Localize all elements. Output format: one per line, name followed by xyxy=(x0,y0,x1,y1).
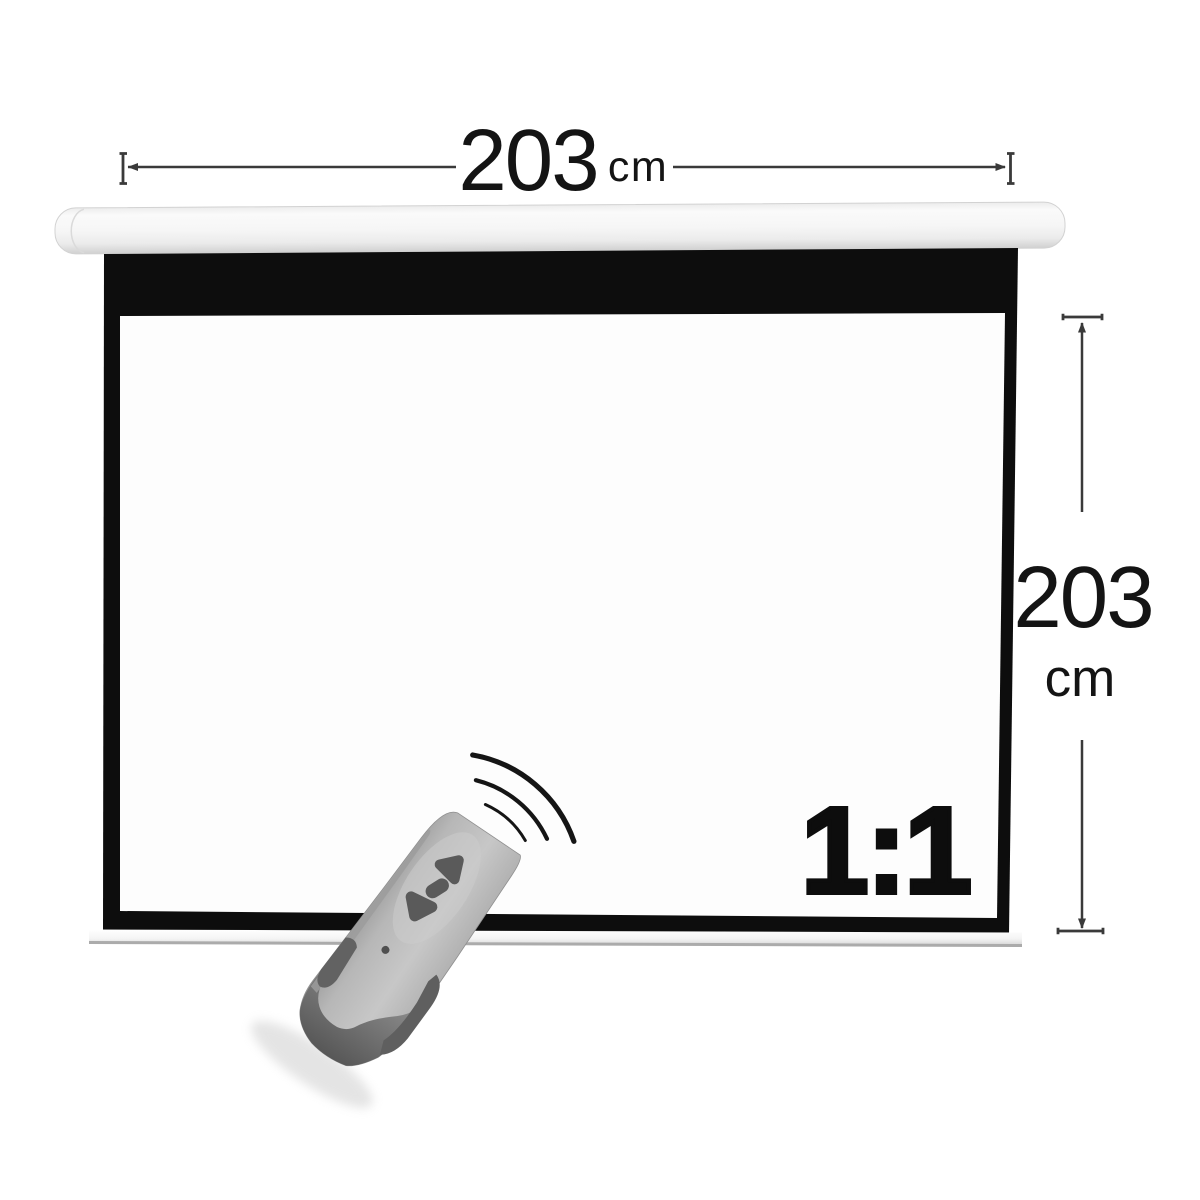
svg-text:1:1: 1:1 xyxy=(801,783,970,920)
svg-text:203: 203 xyxy=(458,112,597,209)
svg-text:cm: cm xyxy=(608,143,668,191)
svg-text:cm: cm xyxy=(1045,649,1116,708)
svg-text:203: 203 xyxy=(1013,549,1152,646)
